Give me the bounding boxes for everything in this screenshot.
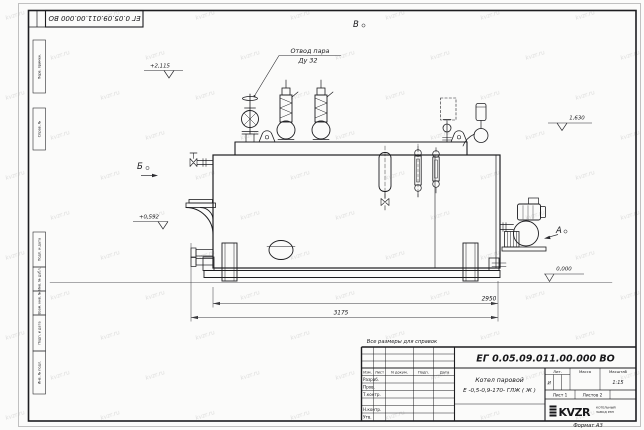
margin-label: Перв. примен. xyxy=(38,54,42,79)
tb-col: N докум. xyxy=(391,370,408,374)
tb-col: Дата xyxy=(440,370,449,374)
margin-label: Подп. и дата xyxy=(38,238,42,261)
logo-caption-line2: ЗАВОД РЭП xyxy=(596,410,614,414)
margin-label: Справ. № xyxy=(38,120,42,137)
lit-label: Лит. xyxy=(553,369,562,374)
product-name-line1: Котел паровой xyxy=(475,377,524,384)
callout-line2: Ду 32 xyxy=(298,57,318,65)
logo-text: KVZR xyxy=(559,406,592,419)
title-block: ЕГ 0.05.09.011.00.000 ВО Изм. Лист N док… xyxy=(362,347,637,421)
tb-col: Лист xyxy=(375,370,384,374)
sheets-total: Листов 2 xyxy=(583,393,603,398)
sheet-number: Лист 1 xyxy=(553,393,568,398)
tb-col: Подп. xyxy=(418,370,429,374)
safety-valve xyxy=(312,80,333,142)
margin-label: Взам. инв. № xyxy=(38,291,42,314)
boiler-view xyxy=(50,80,612,282)
tb-row: Т.контр. xyxy=(362,392,381,397)
elevation-right: 1,630 xyxy=(569,116,585,122)
elevation-zero: 0,000 xyxy=(556,267,572,273)
margin-boxes: Перв. примен. Справ. № Подп. и дата Инв.… xyxy=(33,40,46,394)
left-elbow-nozzle xyxy=(186,200,216,235)
tb-row: Пров. xyxy=(363,384,375,389)
callout-line1: Отвод пара xyxy=(291,47,330,55)
steam-outlet-callout: Отвод пара Ду 32 xyxy=(254,47,342,97)
margin-label: Инв. № подл. xyxy=(38,361,42,384)
kvzr-logo: KVZR КОТЕЛЬНЫЙ ЗАВОД РЭП xyxy=(550,405,616,420)
safety-valve xyxy=(277,80,298,142)
dim-overall-length: 3175 xyxy=(334,311,349,317)
doc-number: ЕГ 0.05.09.011.00.000 ВО xyxy=(476,354,614,365)
manhole xyxy=(267,241,295,260)
water-column xyxy=(379,146,391,210)
logo-caption-line1: КОТЕЛЬНЫЙ xyxy=(596,405,616,410)
margin-label: Подп. и дата xyxy=(38,321,42,344)
lit-value: И xyxy=(548,381,552,387)
tb-col: Изм. xyxy=(363,370,371,374)
base-rails xyxy=(203,257,500,278)
engineering-drawing: ЕГ 0.05.09.011.00.000 ВО Перв. примен. С… xyxy=(0,0,644,430)
lifting-lug xyxy=(259,131,467,142)
margin-label: Инв. № дубл. xyxy=(38,267,42,290)
support-leg xyxy=(222,243,237,281)
tb-row: Разраб. xyxy=(363,377,379,382)
reference-note: Все размеры для справок xyxy=(367,339,438,345)
left-top-valve xyxy=(190,153,213,167)
corner-stamp-number: ЕГ 0.05.09.011.00.000 ВО xyxy=(48,14,141,22)
level-gauge xyxy=(415,144,422,199)
view-v-label: В xyxy=(353,20,359,30)
support-leg xyxy=(463,243,478,281)
view-b-label: Б xyxy=(137,162,143,172)
tb-row: Утв. xyxy=(363,415,372,420)
elevation-top: +2,115 xyxy=(150,64,171,70)
product-name-line2: Е -0,5-0,9-170- ГЛЖ ( Ж ) xyxy=(463,388,536,394)
view-markers: Б В А xyxy=(137,20,567,239)
corner-stamp: ЕГ 0.05.09.011.00.000 ВО xyxy=(29,11,144,28)
steam-outlet-valve xyxy=(242,94,259,142)
tb-row: Н.контр. xyxy=(363,407,381,412)
pressure-gauge-siphon xyxy=(463,104,488,147)
elevation-marks: +2,115 1,630 +0,592 0,000 xyxy=(133,64,592,282)
format-label: Формат А3 xyxy=(573,423,603,429)
scale-value: 1:15 xyxy=(612,380,623,386)
elevation-left: +0,592 xyxy=(139,215,160,221)
dim-inner-length: 2950 xyxy=(482,297,497,303)
view-a-label: А xyxy=(555,226,562,236)
drawing-sheet: kvzr.rukvzr.rukvzr.rukvzr.rukvzr.rukvzr.… xyxy=(0,0,644,430)
level-gauge xyxy=(433,148,440,194)
mass-label: Масса xyxy=(579,369,591,374)
scale-label: Масштаб xyxy=(609,369,628,374)
